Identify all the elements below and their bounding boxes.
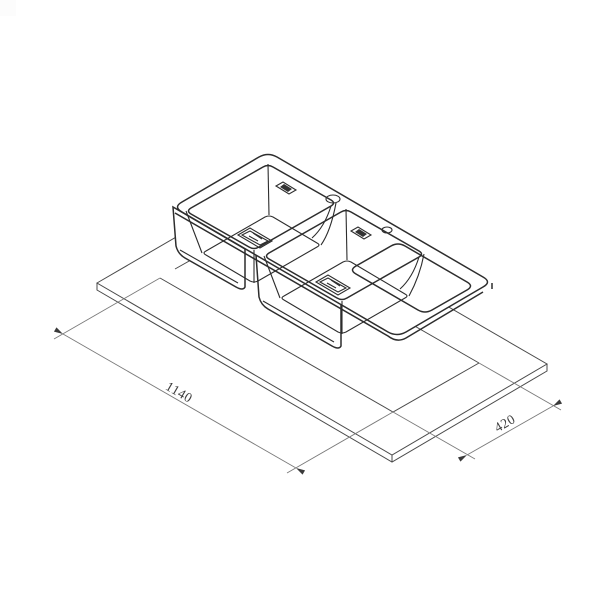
dimension-label-width: 420 [492, 411, 518, 435]
arrowhead-length-start [54, 327, 64, 336]
arrowhead-width-end [552, 399, 562, 408]
dimension-label-length: 1140 [163, 378, 195, 405]
sink-technical-drawing: 1140 420 [0, 0, 600, 600]
diagram-canvas: 1140 420 [0, 0, 600, 600]
